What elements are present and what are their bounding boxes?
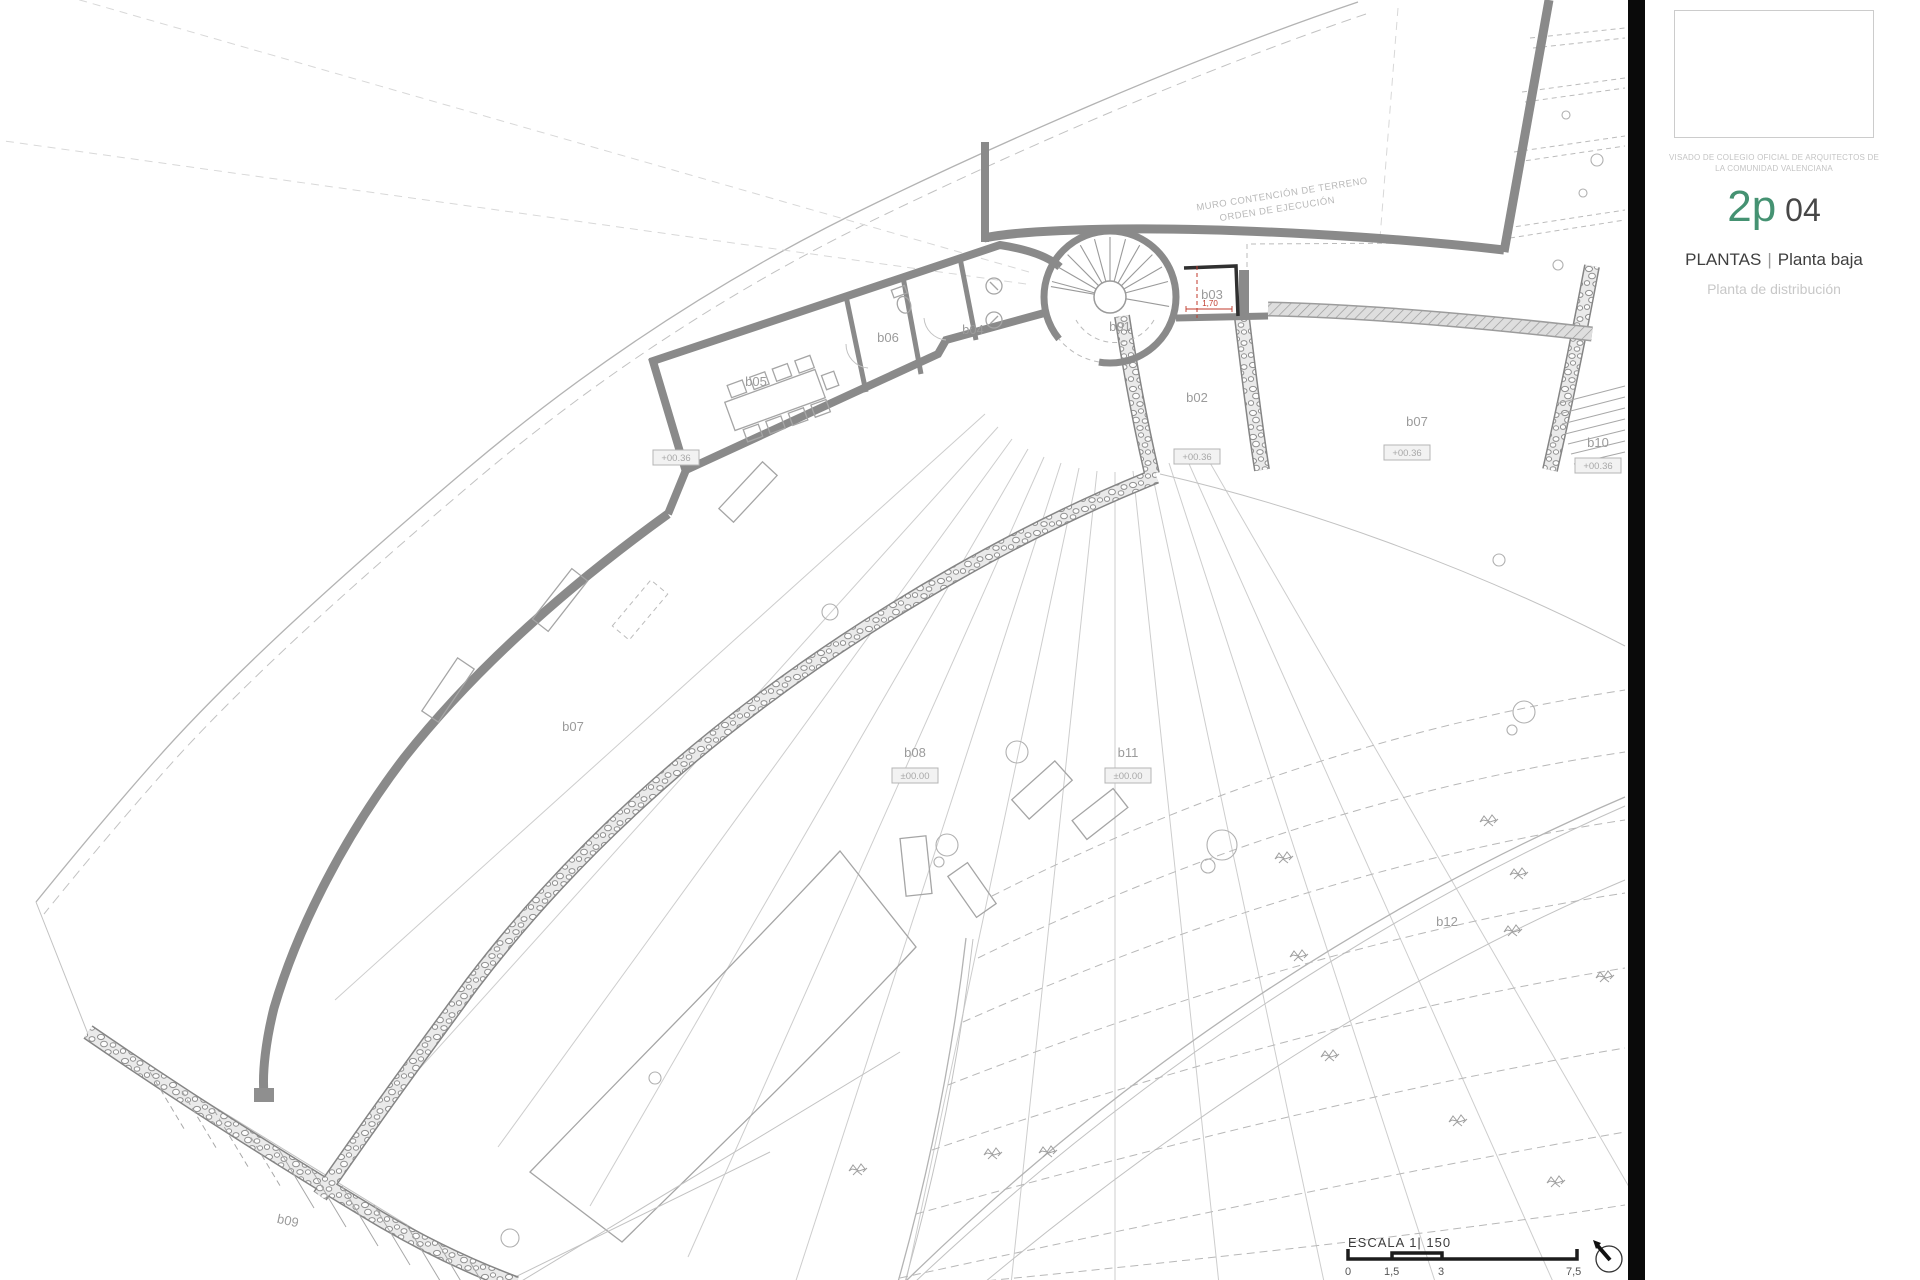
visado-note-line1: VISADO DE COLEGIO OFICIAL DE ARQUITECTOS…	[1645, 152, 1903, 163]
title-block: VISADO DE COLEGIO OFICIAL DE ARQUITECTOS…	[1645, 0, 1920, 1280]
scale-bar: ESCALA 1| 150 0 1,5 3 7,5	[1345, 1235, 1581, 1278]
toilet-icon	[891, 286, 913, 316]
level-b07-hall-value: +00.36	[661, 453, 690, 464]
sheet-series-separator: |	[1767, 250, 1771, 269]
retaining-wall-note: MURO CONTENCIÓN DE TERRENO ORDEN DE EJEC…	[1196, 176, 1371, 228]
scale-tick-1-5: 1,5	[1384, 1266, 1399, 1278]
vegetation-clusters	[849, 815, 1614, 1187]
visado-note-line2: LA COMUNIDAD VALENCIANA	[1645, 163, 1903, 174]
curved-wall-west	[254, 470, 686, 1102]
level-b08: ±00.00	[892, 768, 938, 783]
room-label-b07-upper: b07	[1406, 414, 1428, 429]
ramp-and-paths	[112, 851, 916, 1280]
room-label-b08: b08	[904, 745, 926, 760]
room-label-b06: b06	[877, 330, 899, 345]
sheet-series: PLANTAS	[1685, 250, 1761, 269]
spiral-staircase	[1044, 231, 1176, 363]
upper-terrace-edges	[1247, 28, 1625, 312]
room-label-b01: b01	[1109, 319, 1131, 334]
room-label-b07-hall: b07	[562, 719, 584, 734]
sheet-number: 04	[1785, 192, 1821, 228]
level-b10: +00.36	[1575, 458, 1621, 473]
level-b02-value: +00.36	[1182, 452, 1211, 463]
room-label-b05: b05	[745, 374, 767, 389]
scale-tick-3: 3	[1438, 1266, 1444, 1278]
room-labels: b01 b02 b03 b04 b05 b06 b07 b07 b08 b09 …	[276, 287, 1609, 1230]
sheet-title: Planta baja	[1778, 250, 1863, 269]
visado-stamp-box	[1674, 10, 1874, 138]
level-b07-upper: +00.36	[1384, 445, 1430, 460]
floor-plan-sheet: b01 b02 b03 b04 b05 b06 b07 b07 b08 b09 …	[0, 0, 1920, 1280]
room-label-b04: b04	[962, 322, 984, 337]
hatched-wall-band	[1268, 309, 1592, 334]
sheet-divider-bar	[1628, 0, 1645, 1280]
level-b11-value: ±00.00	[1114, 771, 1143, 782]
north-arrow-icon	[1593, 1240, 1622, 1272]
corridor-fixtures	[986, 278, 1002, 328]
level-b10-value: +00.36	[1583, 461, 1612, 472]
sheet-subtitle: Planta de distribución	[1645, 281, 1903, 297]
site-boundary	[36, 2, 1366, 1034]
scale-tick-0: 0	[1345, 1266, 1351, 1278]
sheet-series-row: PLANTAS|Planta baja	[1645, 250, 1903, 270]
level-b07-upper-value: +00.36	[1392, 448, 1421, 459]
sheet-code-row: 2p04	[1645, 182, 1903, 232]
level-b08-value: ±00.00	[901, 771, 930, 782]
level-b02: +00.36	[1174, 449, 1220, 464]
terrace-furniture	[900, 761, 1128, 917]
dimension-b03: 1,70	[1202, 299, 1218, 308]
sheet-code: 2p	[1727, 182, 1776, 231]
level-markers: +00.36 +00.36 +00.36 ±00.00 ±00.00 +00.3…	[653, 445, 1621, 783]
scale-bar-label: ESCALA 1| 150	[1348, 1235, 1451, 1250]
room-label-b11: b11	[1118, 745, 1139, 760]
tree-circles	[501, 111, 1603, 1247]
scale-tick-7-5: 7,5	[1566, 1266, 1581, 1278]
level-b11: ±00.00	[1105, 768, 1151, 783]
room-label-b10: b10	[1587, 435, 1609, 450]
room-label-b12: b12	[1436, 914, 1458, 929]
visado-note: VISADO DE COLEGIO OFICIAL DE ARQUITECTOS…	[1645, 152, 1903, 174]
dining-table-set	[720, 350, 847, 445]
room-label-b09: b09	[276, 1211, 300, 1230]
level-b07-hall: +00.36	[653, 450, 699, 465]
room-label-b02: b02	[1186, 390, 1208, 405]
